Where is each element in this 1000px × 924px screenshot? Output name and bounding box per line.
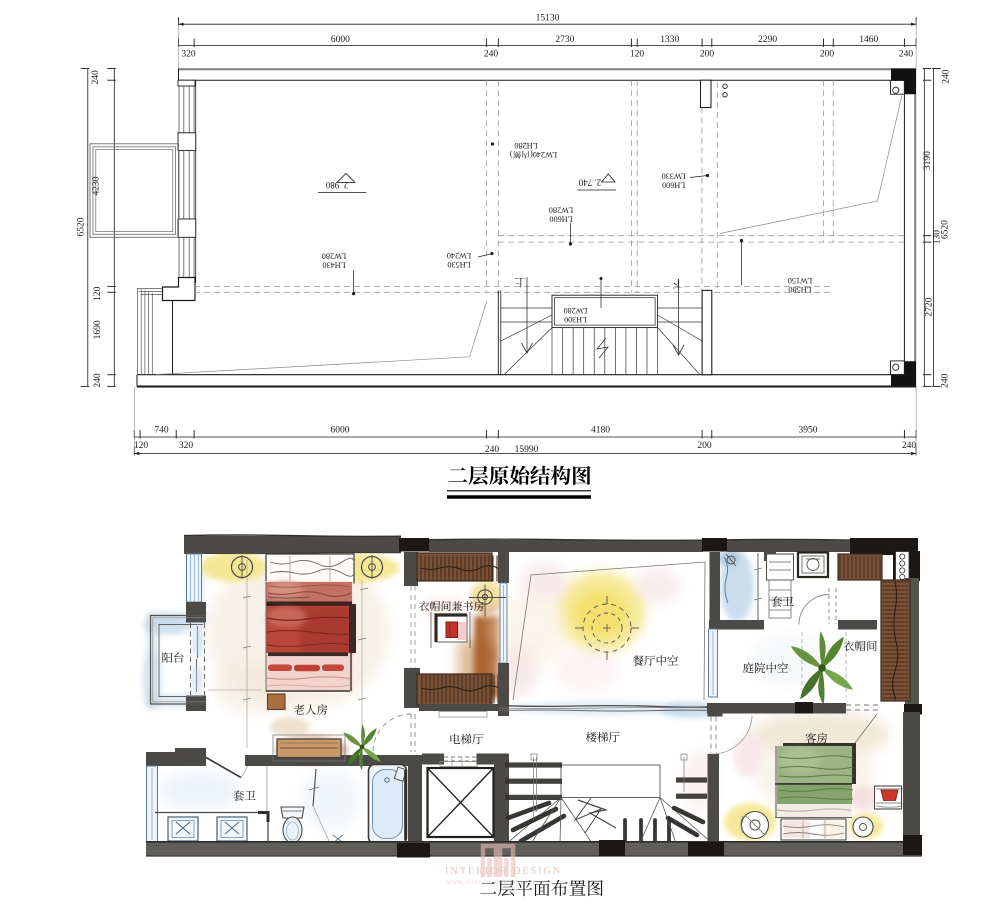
svg-text:LH280: LH280 [514,141,537,150]
svg-text:240: 240 [899,50,914,60]
svg-text:1330: 1330 [660,35,679,45]
svg-text:320: 320 [181,50,196,60]
svg-text:1690: 1690 [93,320,103,339]
svg-text:LH430: LH430 [322,261,345,270]
svg-text:240: 240 [485,445,500,455]
svg-text:LW240: LW240 [447,251,471,260]
svg-text:240: 240 [93,373,103,388]
svg-text:LW150: LW150 [788,276,812,285]
svg-text:2730: 2730 [555,35,574,45]
svg-text:15130: 15130 [536,14,560,24]
svg-text:200: 200 [820,50,835,60]
svg-text:240: 240 [91,70,101,85]
svg-text:4180: 4180 [591,426,610,436]
svg-text:6000: 6000 [331,426,350,436]
svg-text:6520: 6520 [941,220,951,239]
svg-text:LW330: LW330 [661,172,685,181]
svg-text:LH600: LH600 [549,215,572,224]
svg-text:15990: 15990 [515,445,539,455]
svg-text:LW280: LW280 [549,206,573,215]
svg-text:LH530: LH530 [447,260,470,269]
svg-text:240: 240 [941,373,951,388]
svg-text:240: 240 [942,69,952,84]
svg-text:6520: 6520 [77,217,87,236]
svg-text:1460: 1460 [859,35,878,45]
svg-text:www.interior-design.com: www.interior-design.com [446,880,535,886]
svg-text:3950: 3950 [799,426,818,436]
svg-text:2720: 2720 [925,297,935,316]
svg-text:740: 740 [154,426,169,436]
svg-text:200: 200 [700,50,715,60]
svg-text:2. 740: 2. 740 [578,177,601,187]
svg-text:LH300: LH300 [564,315,587,324]
svg-text:INTERIOR DESIGN: INTERIOR DESIGN [445,866,562,877]
svg-text:120: 120 [134,441,149,451]
svg-text:240: 240 [484,50,499,60]
svg-text:240: 240 [902,441,917,451]
svg-text:6000: 6000 [331,35,350,45]
svg-text:120: 120 [93,286,103,301]
svg-text:LH580: LH580 [788,285,811,294]
svg-text:3190: 3190 [923,151,933,170]
svg-text:200: 200 [697,441,712,451]
svg-text:): ) [510,150,513,159]
svg-text:LW280: LW280 [322,252,346,261]
svg-text:LW240(: LW240( [530,150,557,159]
svg-text:120: 120 [630,50,645,60]
svg-text:320: 320 [179,441,194,451]
svg-text:LW280: LW280 [564,306,588,315]
svg-text:2. 980: 2. 980 [325,180,348,190]
svg-text:2290: 2290 [758,35,777,45]
svg-text:LH600: LH600 [662,181,685,190]
